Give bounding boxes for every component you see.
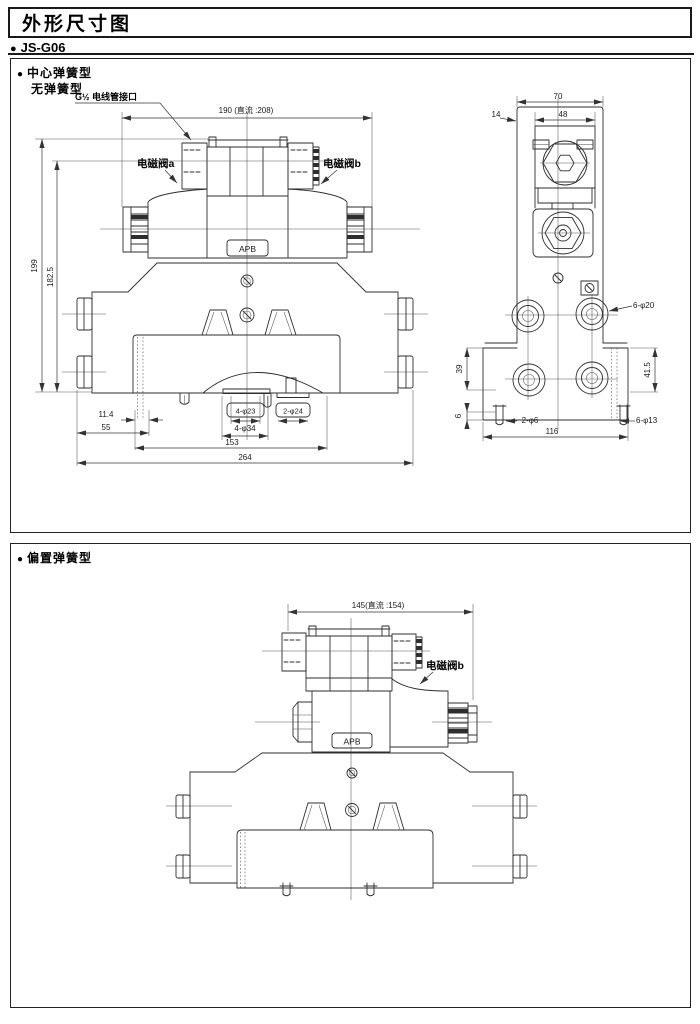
s1-end-block-left: [123, 207, 148, 252]
dim-116: 116: [483, 422, 628, 441]
manual-override-stripes: [313, 147, 319, 185]
dim-4d23-label: 4-φ23: [236, 407, 256, 416]
dim-182-label: 182.5: [46, 266, 55, 287]
s2-terminal-marks-right: [394, 641, 410, 663]
dim-70-label: 70: [554, 92, 563, 101]
dim-153-label: 153: [225, 438, 239, 447]
dim-199: 199 182.5: [30, 139, 330, 392]
drain-stubs: [493, 405, 630, 425]
s1-main-valve-body: APB: [123, 189, 372, 258]
dim-2d24-label: 2-φ24: [283, 407, 303, 416]
s1-pilot-valve: [182, 137, 319, 196]
s1-subplate-end: [483, 294, 630, 425]
dim-6d20: 6-φ20: [609, 301, 655, 311]
dim-145-label: 145(直流 :154): [352, 600, 405, 610]
port-towers: [202, 310, 296, 335]
s2-center-screws: [346, 768, 359, 817]
s2-main-valve: APB: [293, 679, 477, 752]
s1-subplate: [77, 263, 413, 420]
dim-116-label: 116: [546, 427, 559, 436]
dim-6d20-label: 6-φ20: [633, 301, 655, 310]
dim-2d6-label: 2-φ6: [522, 416, 539, 425]
dim-264-label: 264: [238, 453, 252, 462]
main-solenoid-end: [533, 203, 593, 257]
dim-41-5: 41.5: [630, 348, 658, 392]
dim-39-6: 39 6: [454, 348, 496, 428]
s2-end-block-right: [448, 703, 477, 743]
dim-bottom-row: 11.4 55 4-φ23 2-φ24 4-φ34: [77, 390, 413, 466]
s2-drain-stubs: [280, 883, 377, 896]
port-label-apb: APB: [239, 244, 256, 254]
dim-11-4-label: 11.4: [99, 410, 115, 419]
s1-end-block-right: [347, 207, 372, 252]
conduit-label: G½ 电线管接口: [75, 91, 137, 102]
dim-4d34-label: 4-φ34: [234, 424, 256, 433]
catalog-page: 外形尺寸图 ●JS-G06 ●中心弹簧型 无弹簧型 ●偏置弹簧型: [0, 0, 700, 1024]
dim-55-label: 55: [102, 423, 111, 432]
dimension-drawings: APB: [0, 0, 700, 1024]
side-body-details: [553, 273, 598, 295]
solenoid-a-label: 电磁阀a: [137, 157, 174, 170]
s2-mounting-ears: [176, 795, 527, 878]
dim-70: 70: [517, 92, 603, 107]
s2-front-view: 145(直流 :154): [166, 600, 537, 900]
s2-override-stripes: [416, 637, 422, 668]
s1-front-view: APB: [30, 91, 428, 466]
dim-14-label: 14: [492, 110, 501, 119]
dim-2d6: 2-φ6: [506, 416, 539, 425]
dim-48-label: 48: [559, 110, 568, 119]
dim-6d13-label: 6-φ13: [636, 416, 658, 425]
dim-39-label: 39: [455, 364, 464, 373]
solenoid-b-label: 电磁阀b: [323, 157, 361, 170]
dim-190-label: 190 (直流 :208): [219, 105, 274, 115]
s2-subplate: [176, 753, 527, 896]
dim-41-5-label: 41.5: [643, 362, 652, 378]
s1-side-view: 70 48 14 6-φ20 39: [454, 92, 658, 441]
dim-14: 14: [492, 110, 516, 121]
s2-solenoid-b-label: 电磁阀b: [426, 659, 464, 672]
port-circles: [505, 294, 618, 400]
dim-48: 48: [535, 110, 595, 127]
s2-port-label-apb: APB: [343, 737, 360, 747]
dim-6-label: 6: [454, 413, 463, 418]
s2-pilot-valve: [282, 626, 422, 691]
dim-145: 145(直流 :154): [288, 600, 473, 700]
pilot-solenoid-end: [533, 140, 595, 203]
dim-199-label: 199: [30, 259, 39, 273]
